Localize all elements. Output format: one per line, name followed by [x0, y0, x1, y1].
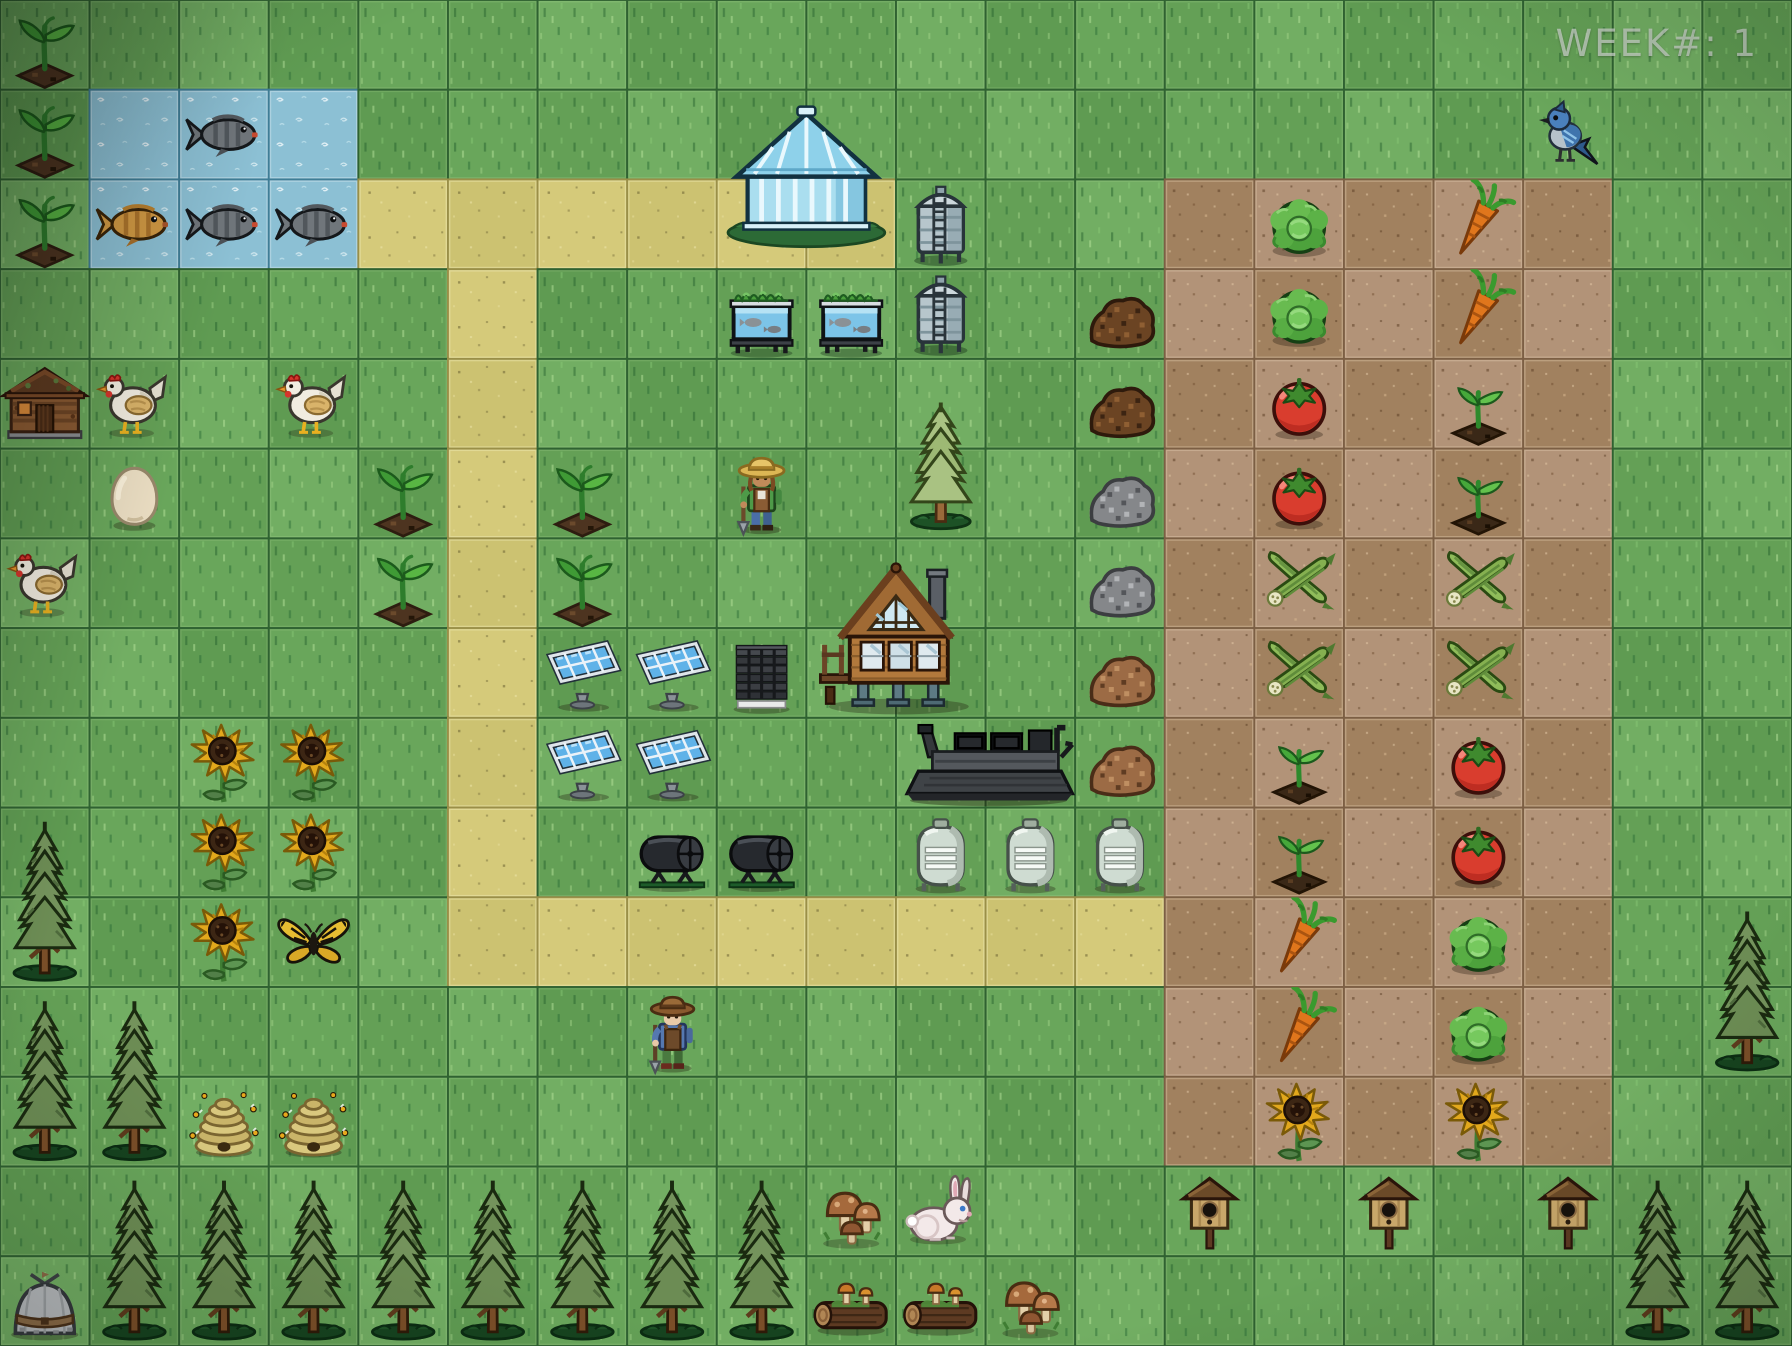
tile-grass[interactable]: [1613, 179, 1703, 269]
tile-grass[interactable]: [1613, 718, 1703, 808]
tile-soil[interactable]: [1165, 718, 1255, 808]
tile-soil[interactable]: [1344, 1077, 1434, 1167]
tile-grass[interactable]: [1702, 538, 1792, 628]
tile-path[interactable]: [896, 897, 986, 987]
tile-grass[interactable]: [358, 269, 448, 359]
tile-grass[interactable]: [90, 718, 180, 808]
tile-grass[interactable]: [179, 449, 269, 539]
tile-grass[interactable]: [1613, 1077, 1703, 1167]
tile-grass[interactable]: [896, 987, 986, 1077]
tile-soil[interactable]: [1165, 987, 1255, 1077]
tile-path[interactable]: [448, 449, 538, 539]
tile-grass[interactable]: [358, 90, 448, 180]
tile-grass[interactable]: [1344, 1256, 1434, 1346]
tile-path[interactable]: [448, 269, 538, 359]
tile-grass[interactable]: [179, 628, 269, 718]
tile-soil[interactable]: [1165, 897, 1255, 987]
tile-grass[interactable]: [1075, 0, 1165, 90]
tile-grass[interactable]: [1702, 718, 1792, 808]
tile-grass[interactable]: [538, 808, 628, 898]
tile-path[interactable]: [1075, 897, 1165, 987]
tile-grass[interactable]: [1075, 1256, 1165, 1346]
tile-soil[interactable]: [1523, 718, 1613, 808]
tile-grass[interactable]: [1075, 90, 1165, 180]
tile-grass[interactable]: [538, 269, 628, 359]
tile-grass[interactable]: [986, 269, 1076, 359]
tile-grass[interactable]: [627, 449, 717, 539]
tile-grass[interactable]: [806, 0, 896, 90]
tile-grass[interactable]: [358, 987, 448, 1077]
farm-game-screen: WEEK#: 1: [0, 0, 1792, 1346]
tile-water[interactable]: [269, 90, 359, 180]
tile-grass[interactable]: [1165, 90, 1255, 180]
tile-grass[interactable]: [538, 90, 628, 180]
tile-soil[interactable]: [1344, 538, 1434, 628]
tile-grass[interactable]: [717, 359, 807, 449]
tile-path[interactable]: [448, 808, 538, 898]
pallet-stack[interactable]: [734, 646, 790, 714]
tile-path[interactable]: [448, 538, 538, 628]
tile-grass[interactable]: [90, 897, 180, 987]
tile-grass[interactable]: [1702, 359, 1792, 449]
tile-soil[interactable]: [1523, 269, 1613, 359]
tile-grass[interactable]: [269, 628, 359, 718]
tile-soil[interactable]: [1344, 179, 1434, 269]
tile-grass[interactable]: [806, 1077, 896, 1167]
tile-grass[interactable]: [1434, 1256, 1524, 1346]
tile-grass[interactable]: [1702, 179, 1792, 269]
tile-grass[interactable]: [1613, 987, 1703, 1077]
tile-soil[interactable]: [1523, 987, 1613, 1077]
tile-grass[interactable]: [986, 1077, 1076, 1167]
tile-grass[interactable]: [358, 0, 448, 90]
tile-soil[interactable]: [1523, 808, 1613, 898]
tile-soil[interactable]: [1165, 359, 1255, 449]
tile-soil[interactable]: [1523, 538, 1613, 628]
tile-soil[interactable]: [1165, 538, 1255, 628]
tile-grass[interactable]: [986, 179, 1076, 269]
tile-grass[interactable]: [627, 0, 717, 90]
tile-grass[interactable]: [90, 269, 180, 359]
tile-grass[interactable]: [90, 628, 180, 718]
tile-grass[interactable]: [1613, 449, 1703, 539]
tile-soil[interactable]: [1523, 179, 1613, 269]
tile-grass[interactable]: [0, 718, 90, 808]
tile-grass[interactable]: [1165, 1256, 1255, 1346]
tile-grass[interactable]: [0, 269, 90, 359]
tile-path[interactable]: [986, 897, 1076, 987]
farm-board: [0, 0, 1792, 1346]
tile-grass[interactable]: [269, 987, 359, 1077]
tile-grass[interactable]: [90, 538, 180, 628]
tile-grass[interactable]: [538, 1077, 628, 1167]
tile-grass[interactable]: [0, 1167, 90, 1257]
tile-grass[interactable]: [1254, 1256, 1344, 1346]
tile-soil[interactable]: [1165, 628, 1255, 718]
tile-grass[interactable]: [986, 90, 1076, 180]
tile-path[interactable]: [448, 897, 538, 987]
tile-grass[interactable]: [806, 718, 896, 808]
tile-grass[interactable]: [90, 0, 180, 90]
tile-grass[interactable]: [1613, 90, 1703, 180]
tile-grass[interactable]: [179, 0, 269, 90]
tile-grass[interactable]: [806, 359, 896, 449]
tile-grass[interactable]: [179, 359, 269, 449]
tile-path[interactable]: [448, 359, 538, 449]
tile-grass[interactable]: [1075, 179, 1165, 269]
tile-grass[interactable]: [1613, 897, 1703, 987]
tile-grass[interactable]: [448, 90, 538, 180]
tile-grass[interactable]: [358, 718, 448, 808]
tile-grass[interactable]: [1344, 0, 1434, 90]
tile-grass[interactable]: [269, 449, 359, 539]
tile-grass[interactable]: [1613, 808, 1703, 898]
tile-soil[interactable]: [1344, 718, 1434, 808]
tile-grass[interactable]: [179, 987, 269, 1077]
tile-grass[interactable]: [358, 897, 448, 987]
tile-grass[interactable]: [269, 0, 359, 90]
tile-grass[interactable]: [986, 538, 1076, 628]
tile-grass[interactable]: [1523, 1256, 1613, 1346]
tile-grass[interactable]: [896, 1077, 986, 1167]
tile-water[interactable]: [90, 90, 180, 180]
tile-grass[interactable]: [806, 808, 896, 898]
tile-grass[interactable]: [717, 987, 807, 1077]
tile-grass[interactable]: [627, 269, 717, 359]
tile-grass[interactable]: [986, 628, 1076, 718]
tile-grass[interactable]: [358, 359, 448, 449]
tile-grass[interactable]: [1702, 90, 1792, 180]
tile-soil[interactable]: [1165, 179, 1255, 269]
tile-grass[interactable]: [538, 987, 628, 1077]
tile-grass[interactable]: [448, 0, 538, 90]
tile-grass[interactable]: [717, 538, 807, 628]
tile-soil[interactable]: [1344, 269, 1434, 359]
tile-grass[interactable]: [717, 718, 807, 808]
tile-grass[interactable]: [1613, 628, 1703, 718]
tile-grass[interactable]: [538, 0, 628, 90]
tile-soil[interactable]: [1165, 269, 1255, 359]
tile-grass[interactable]: [448, 987, 538, 1077]
tile-grass[interactable]: [1702, 269, 1792, 359]
tile-grass[interactable]: [986, 1167, 1076, 1257]
tile-path[interactable]: [538, 897, 628, 987]
tile-grass[interactable]: [0, 449, 90, 539]
tile-soil[interactable]: [1344, 449, 1434, 539]
tile-grass[interactable]: [1254, 90, 1344, 180]
tile-soil[interactable]: [1523, 628, 1613, 718]
tile-grass[interactable]: [896, 0, 986, 90]
tile-grass[interactable]: [179, 538, 269, 628]
tile-path[interactable]: [627, 897, 717, 987]
compost-tumbler[interactable]: [640, 837, 704, 892]
tile-grass[interactable]: [1075, 1167, 1165, 1257]
tile-grass[interactable]: [269, 269, 359, 359]
tile-soil[interactable]: [1165, 1077, 1255, 1167]
tile-soil[interactable]: [1344, 987, 1434, 1077]
tile-grass[interactable]: [1075, 1077, 1165, 1167]
tile-path[interactable]: [358, 179, 448, 269]
tile-soil[interactable]: [1344, 808, 1434, 898]
tile-grass[interactable]: [627, 359, 717, 449]
tile-grass[interactable]: [1075, 987, 1165, 1077]
tile-path[interactable]: [627, 179, 717, 269]
tile-soil[interactable]: [1165, 808, 1255, 898]
tile-grass[interactable]: [1702, 449, 1792, 539]
tile-grass[interactable]: [1613, 359, 1703, 449]
tile-grass[interactable]: [179, 269, 269, 359]
tile-soil[interactable]: [1523, 1077, 1613, 1167]
tile-soil[interactable]: [1344, 897, 1434, 987]
tile-grass[interactable]: [269, 538, 359, 628]
tile-grass[interactable]: [896, 90, 986, 180]
tile-grass[interactable]: [806, 987, 896, 1077]
tile-soil[interactable]: [1344, 359, 1434, 449]
tile-grass[interactable]: [1434, 0, 1524, 90]
tile-grass[interactable]: [1254, 1167, 1344, 1257]
tile-grass[interactable]: [627, 538, 717, 628]
tile-grass[interactable]: [1613, 538, 1703, 628]
tile-soil[interactable]: [1344, 628, 1434, 718]
tile-grass[interactable]: [627, 90, 717, 180]
tile-path[interactable]: [717, 897, 807, 987]
tile-grass[interactable]: [806, 449, 896, 539]
tile-grass[interactable]: [448, 1077, 538, 1167]
tile-grass[interactable]: [627, 1077, 717, 1167]
tile-grass[interactable]: [358, 628, 448, 718]
tile-soil[interactable]: [1523, 359, 1613, 449]
tile-grass[interactable]: [358, 808, 448, 898]
tile-grass[interactable]: [717, 1077, 807, 1167]
tile-soil[interactable]: [1165, 449, 1255, 539]
tile-grass[interactable]: [1434, 1167, 1524, 1257]
tile-grass[interactable]: [717, 0, 807, 90]
tile-grass[interactable]: [1702, 808, 1792, 898]
tile-grass[interactable]: [1344, 90, 1434, 180]
tile-grass[interactable]: [1613, 269, 1703, 359]
tile-path[interactable]: [806, 897, 896, 987]
tile-grass[interactable]: [538, 359, 628, 449]
tile-grass[interactable]: [1165, 0, 1255, 90]
tile-soil[interactable]: [1523, 897, 1613, 987]
tile-grass[interactable]: [358, 1077, 448, 1167]
tile-grass[interactable]: [1702, 628, 1792, 718]
tile-grass[interactable]: [1254, 0, 1344, 90]
tile-grass[interactable]: [986, 987, 1076, 1077]
tile-grass[interactable]: [986, 449, 1076, 539]
tile-path[interactable]: [538, 179, 628, 269]
tile-grass[interactable]: [986, 0, 1076, 90]
tile-path[interactable]: [448, 718, 538, 808]
compost-tumbler[interactable]: [729, 837, 793, 892]
tile-path[interactable]: [448, 179, 538, 269]
tile-grass[interactable]: [1702, 1077, 1792, 1167]
tile-grass[interactable]: [986, 359, 1076, 449]
tile-soil[interactable]: [1523, 449, 1613, 539]
tile-grass[interactable]: [0, 628, 90, 718]
tile-grass[interactable]: [1434, 90, 1524, 180]
tile-grass[interactable]: [90, 808, 180, 898]
week-counter: WEEK#: 1: [1556, 22, 1758, 65]
tile-path[interactable]: [448, 628, 538, 718]
